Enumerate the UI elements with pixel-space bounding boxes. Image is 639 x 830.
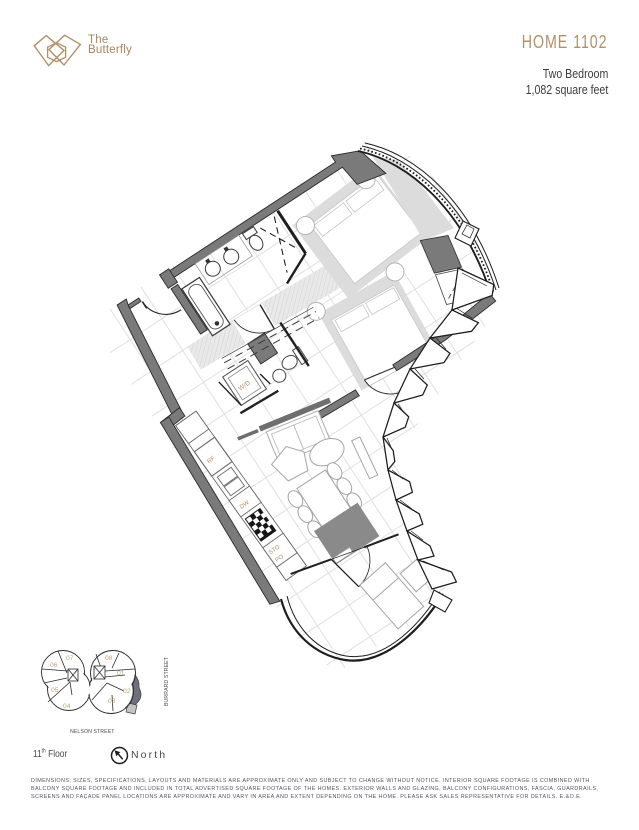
svg-text:08: 08 [105, 655, 113, 662]
svg-text:06: 06 [50, 662, 58, 669]
svg-text:02: 02 [123, 688, 131, 695]
svg-text:07: 07 [66, 655, 74, 662]
svg-text:01: 01 [117, 670, 125, 677]
svg-text:04: 04 [63, 703, 71, 710]
svg-text:03: 03 [108, 698, 116, 705]
svg-text:05: 05 [51, 687, 59, 694]
